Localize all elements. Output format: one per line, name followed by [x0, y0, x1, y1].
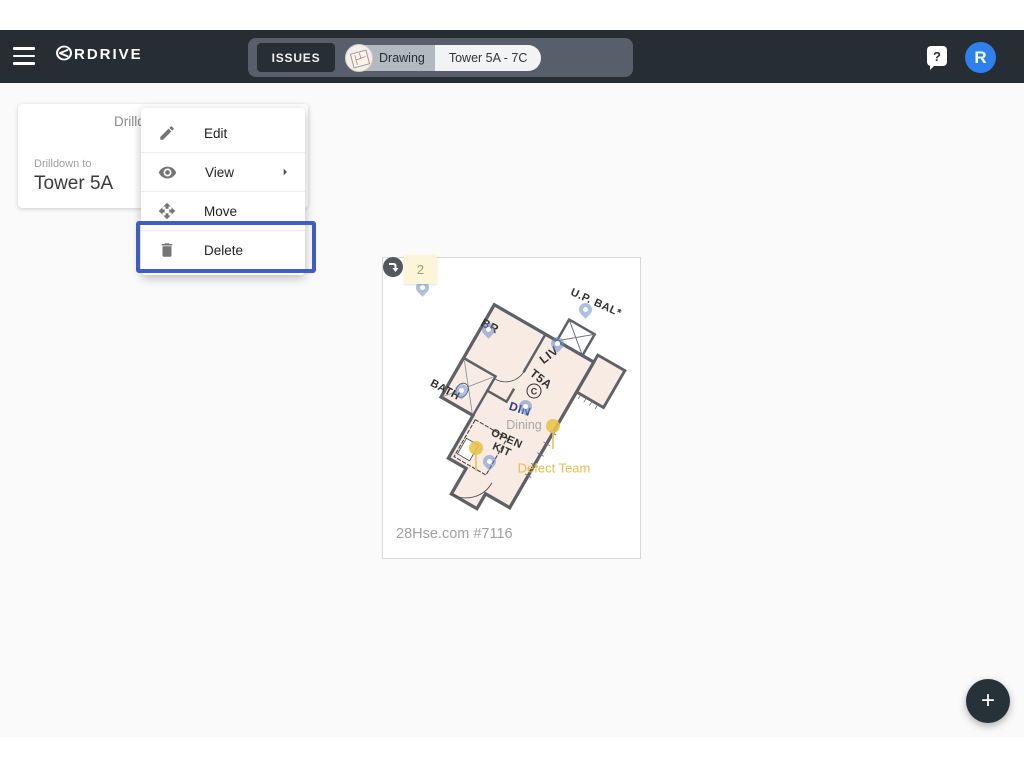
- yellow-pin-icon[interactable]: [469, 441, 483, 455]
- menu-item-delete[interactable]: Delete: [141, 231, 305, 269]
- issues-button[interactable]: ISSUES: [257, 43, 335, 72]
- card-subtitle: Drilldown to: [34, 158, 91, 170]
- rdrive-logo: ⧀ RDRIVE: [56, 43, 143, 66]
- card-tower-name: Tower 5A: [34, 173, 113, 195]
- rdrive-logo-text: RDRIVE: [74, 46, 143, 63]
- menu-label-edit: Edit: [204, 126, 227, 141]
- trash-icon: [158, 241, 176, 259]
- sticky-note-marker[interactable]: 2: [404, 255, 437, 284]
- avatar-letter: R: [974, 48, 986, 68]
- floor-plan-preview[interactable]: BR U.P. BAL* LIV T5A C DIN BATH OPEN KIT…: [382, 257, 641, 559]
- help-button[interactable]: ?: [927, 46, 947, 66]
- yellow-pin-icon[interactable]: [546, 419, 560, 433]
- plan-watermark: 28Hse.com #7116: [396, 526, 513, 542]
- eye-icon: [158, 163, 177, 182]
- menu-item-edit[interactable]: Edit: [141, 114, 305, 152]
- add-button[interactable]: +: [966, 679, 1010, 723]
- plus-icon: +: [981, 687, 995, 715]
- user-avatar[interactable]: R: [965, 42, 996, 73]
- annotation-dining: Dining: [506, 418, 541, 432]
- chip-drawing-name: Tower 5A - 7C: [435, 45, 542, 71]
- drawing-toolbar: ISSUES Drawing Tower 5A - 7C: [248, 38, 633, 77]
- hamburger-menu-icon[interactable]: [13, 47, 35, 65]
- annotation-defect-team: Defect Team: [518, 461, 591, 476]
- pencil-icon: [158, 124, 176, 142]
- question-mark-icon: ?: [933, 49, 941, 64]
- menu-label-view: View: [205, 165, 234, 180]
- menu-label-move: Move: [204, 204, 237, 219]
- move-icon: [158, 202, 176, 220]
- chevron-right-icon: [277, 164, 293, 180]
- room-label-c: C: [527, 384, 542, 399]
- drawing-thumbnail-icon: [345, 44, 373, 72]
- drilldown-marker[interactable]: [383, 257, 403, 282]
- drawing-chip[interactable]: Drawing Tower 5A - 7C: [345, 44, 541, 71]
- top-navbar: ⧀ RDRIVE ISSUES Drawing Tower 5A - 7C ? …: [0, 30, 1024, 83]
- menu-item-view[interactable]: View: [141, 153, 305, 191]
- menu-item-move[interactable]: Move: [141, 192, 305, 230]
- context-menu: Edit View Move Delete: [141, 108, 305, 275]
- app-viewport: ⧀ RDRIVE ISSUES Drawing Tower 5A - 7C ? …: [0, 30, 1024, 737]
- menu-label-delete: Delete: [204, 243, 243, 258]
- rdrive-logo-icon: ⧀: [56, 43, 73, 66]
